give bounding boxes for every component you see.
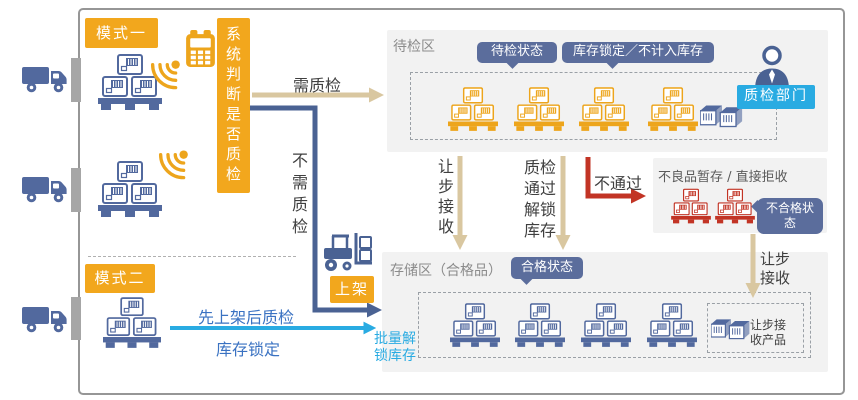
decision-bar: 系统判断是否质检 (217, 18, 250, 193)
no-need-qc-label: 不需质检 (286, 152, 310, 240)
qualified-badge: 合格状态 (511, 257, 583, 279)
mode2-flow-label-2: 库存锁定 (216, 336, 280, 360)
need-qc-label: 需质检 (293, 72, 341, 96)
storage-zone-title: 存储区（合格品） (390, 260, 502, 280)
storage-pallet-icon (581, 302, 631, 348)
pending-zone-title: 待检区 (393, 36, 435, 56)
warehouse-flow-diagram: 待检区 不良品暂存 / 直接拒收 存储区（合格品） 模式一 系统判断是否质检 需… (0, 0, 858, 400)
wifi-icon (138, 52, 184, 94)
wifi-icon (146, 142, 192, 184)
defect-zone-title: 不良品暂存 / 直接拒收 (658, 166, 788, 185)
mode-divider (88, 256, 296, 257)
concession-label-2: 让步 接收 (760, 250, 790, 288)
concession-cubes-icon (711, 316, 751, 342)
inventory-lock-badge: 库存锁定／不计入库存 (562, 42, 714, 63)
inspector-badge: 质检部门 (737, 85, 815, 109)
pending-status-badge: 待检状态 (477, 42, 557, 63)
mode1-badge: 模式一 (85, 18, 158, 48)
dock-tab (71, 297, 81, 340)
pending-pallet-icon (448, 86, 498, 132)
pending-pallet-icon (648, 86, 698, 132)
storage-pallet-icon (450, 302, 500, 348)
qc-pass-label: 质检 通过 解锁 库存 (524, 157, 560, 241)
truck-icon (22, 172, 68, 204)
pending-pallet-icon (579, 86, 629, 132)
concession-label-1: 让步接收 (432, 158, 456, 238)
pallet-icon (103, 296, 161, 349)
concession-box-label: 让步接 收产品 (750, 318, 786, 348)
storage-pallet-icon (515, 302, 565, 348)
scanner-icon (186, 30, 215, 67)
dock-tab (71, 168, 81, 212)
truck-icon (22, 62, 68, 94)
defect-pallet-icon (715, 188, 755, 224)
pending-pallet-icon (514, 86, 564, 132)
unqualified-badge: 不合格状 态 (757, 198, 823, 234)
batch-unlock-label: 批量解 锁库存 (374, 331, 416, 365)
inspector-icon (752, 45, 792, 90)
shelve-badge: 上架 (330, 276, 374, 303)
mode2-badge: 模式二 (85, 264, 155, 293)
dock-tab (71, 58, 81, 102)
forklift-icon (320, 233, 374, 275)
qc-fail-label: 不通过 (594, 170, 642, 194)
mode2-flow-label-1: 先上架后质检 (198, 304, 294, 328)
truck-icon (22, 302, 68, 334)
defect-pallet-icon (671, 188, 711, 224)
storage-pallet-icon (647, 302, 697, 348)
